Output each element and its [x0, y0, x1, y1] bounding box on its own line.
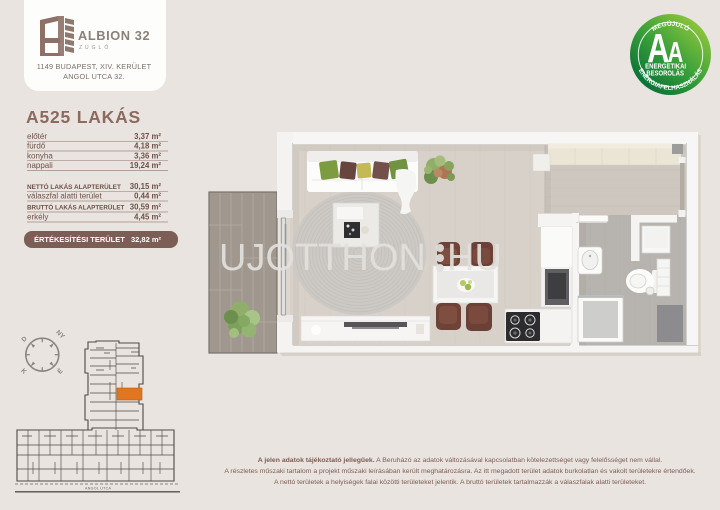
- svg-text:30,15 m²: 30,15 m²: [130, 182, 162, 191]
- svg-text:HU: HU: [447, 237, 502, 279]
- svg-text:ANGOL UTCA: ANGOL UTCA: [85, 486, 112, 490]
- svg-text:4,45 m²: 4,45 m²: [134, 213, 161, 222]
- svg-text:30,59 m²: 30,59 m²: [130, 203, 162, 212]
- svg-text:előtér: előtér: [27, 132, 47, 141]
- svg-text:3,36 m²: 3,36 m²: [134, 151, 161, 160]
- svg-text:konyha: konyha: [27, 151, 53, 160]
- svg-text:É: É: [55, 366, 65, 376]
- svg-text:K: K: [19, 367, 27, 375]
- svg-text:NETTÓ LAKÁS ALAPTERÜLET: NETTÓ LAKÁS ALAPTERÜLET: [27, 182, 121, 191]
- svg-text:D: D: [20, 335, 28, 343]
- svg-text:nappali: nappali: [27, 161, 53, 170]
- svg-text:NY: NY: [54, 329, 66, 341]
- svg-text:válaszfal alatti terület: válaszfal alatti terület: [27, 192, 102, 201]
- svg-text:3,37 m²: 3,37 m²: [134, 132, 161, 141]
- svg-text:fürdő: fürdő: [27, 142, 46, 151]
- svg-text:BESOROLÁS: BESOROLÁS: [646, 68, 684, 77]
- svg-text:erkély: erkély: [27, 213, 48, 222]
- svg-text:0,44 m²: 0,44 m²: [134, 192, 161, 201]
- svg-text:4,18 m²: 4,18 m²: [134, 142, 161, 151]
- svg-text:19,24 m²: 19,24 m²: [130, 161, 162, 170]
- svg-text:UJOTTHON: UJOTTHON: [219, 237, 426, 279]
- svg-text:BRUTTÓ LAKÁS ALAPTERÜLET: BRUTTÓ LAKÁS ALAPTERÜLET: [27, 203, 125, 212]
